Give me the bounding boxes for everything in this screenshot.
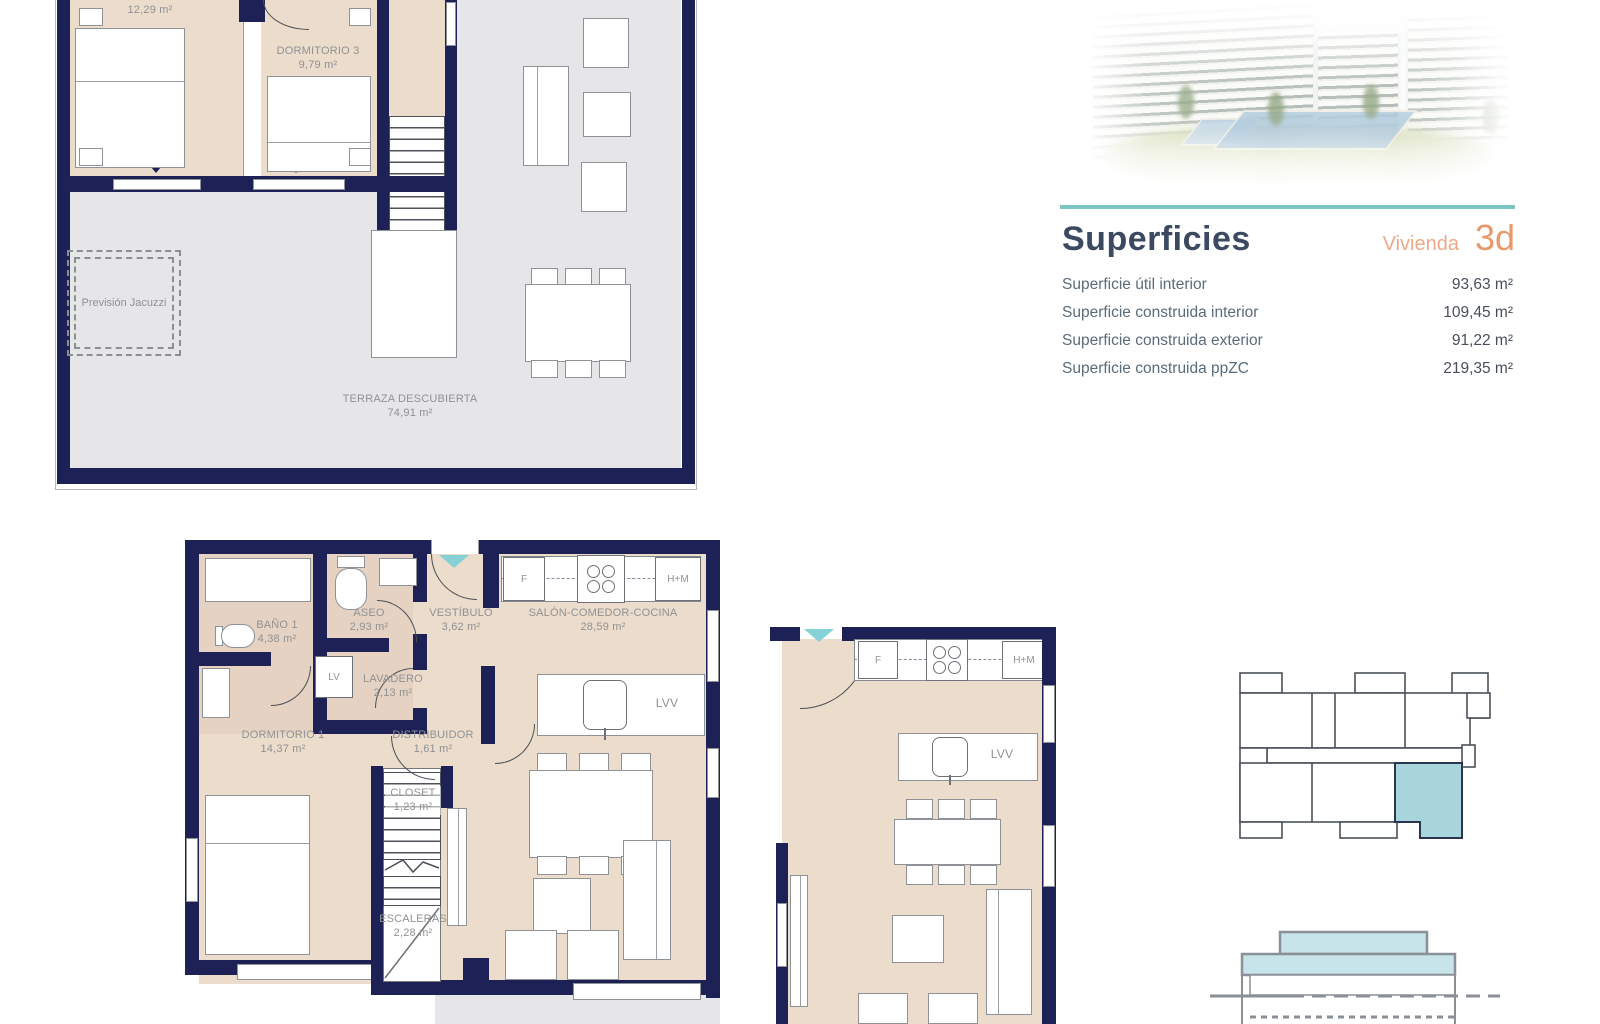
toilet (335, 568, 367, 610)
room-label-dormitorio1: DORMITORIO 114,37 m² (213, 728, 353, 757)
dishwasher-label: LVV (976, 747, 1028, 763)
wall (239, 0, 265, 22)
chair (938, 799, 965, 819)
wall (441, 766, 453, 808)
location-key-plan (1205, 645, 1515, 840)
wall (199, 652, 271, 666)
key-top-row (1240, 693, 1470, 748)
accent-rule (1060, 205, 1515, 209)
chair (970, 799, 997, 819)
chair (906, 799, 933, 819)
area-label: Superficie útil interior (1062, 276, 1207, 294)
wall (185, 540, 199, 975)
chair (531, 360, 558, 378)
cooktop-icon (577, 555, 625, 603)
armchair (858, 993, 908, 1024)
chair (938, 865, 965, 885)
window (446, 2, 456, 46)
tv-cabinet (790, 875, 808, 1007)
coffee-table (892, 915, 944, 963)
chair (565, 360, 592, 378)
key-bottom-row (1240, 763, 1397, 822)
burners (933, 646, 961, 674)
table-row: Superficie construida interior 109,45 m² (1062, 299, 1513, 327)
window (1043, 825, 1055, 887)
sink-tap (949, 775, 951, 785)
key-bump (1467, 693, 1490, 718)
room-label-bedroom3: DORMITORIO 3 9,79 m² (261, 44, 375, 73)
sofa (523, 66, 569, 166)
bed (205, 795, 310, 955)
chair (537, 856, 567, 875)
wall (57, 468, 695, 484)
sink (379, 558, 417, 586)
nightstand (349, 148, 371, 166)
floor-plan-upper-level: Previsión Jacuzzi 12,29 m² DORMITORIO 3 … (55, 0, 697, 490)
coffee-table (533, 878, 591, 934)
wall (483, 554, 499, 608)
table-row: Superficie útil interior 93,63 m² (1062, 271, 1513, 299)
palm-tree (1178, 85, 1194, 119)
room-name: TERRAZA DESCUBIERTA (280, 392, 540, 406)
area-label: Superficie construida ppZC (1062, 360, 1249, 378)
oven-label: H+M (667, 574, 688, 585)
fridge-box: F (858, 641, 898, 679)
key-bump (1462, 745, 1475, 767)
dishwasher-label: LVV (637, 696, 697, 712)
nightstand (349, 8, 371, 26)
fridge-label: F (875, 655, 881, 666)
section-floor-upper (1242, 954, 1455, 975)
jacuzzi-provision-label: Previsión Jacuzzi (74, 257, 174, 349)
highlighted-unit (1395, 763, 1462, 838)
key-bump (1240, 673, 1282, 693)
armchair (567, 930, 619, 980)
armchair (583, 18, 629, 68)
window-marker-icon (563, 984, 573, 990)
window (253, 179, 345, 190)
room-area: 12,29 m² (90, 3, 210, 17)
superficies-panel: Superficies Vivienda 3d Superficie útil … (1060, 205, 1515, 395)
dining-table (894, 819, 1001, 865)
area-value: 109,45 m² (1443, 304, 1513, 322)
oven-label: H+M (1013, 655, 1034, 666)
bed (75, 28, 185, 168)
room-label-salon: SALÓN-COMEDOR-COCINA28,59 m² (505, 606, 701, 635)
table-row: Superficie construida ppZC 219,35 m² (1062, 355, 1513, 383)
area-label: Superficie construida exterior (1062, 332, 1263, 350)
nightstand (79, 148, 103, 166)
armchair (928, 993, 978, 1024)
room-label-aseo: ASEO2,93 m² (327, 606, 411, 635)
room-area: 74,91 m² (280, 406, 540, 420)
vivienda-label: Vivienda (1383, 233, 1459, 256)
coffee-table (583, 92, 631, 137)
staircase (383, 876, 441, 906)
building-section-key (1205, 930, 1505, 1024)
hero-rendering (1063, 0, 1525, 198)
area-value: 91,22 m² (1452, 332, 1513, 350)
fridge-box: F (503, 557, 545, 601)
vivienda-tag: Vivienda 3d (1383, 217, 1515, 259)
palm-tree (1483, 100, 1499, 134)
vivienda-code: 3d (1475, 217, 1515, 259)
dining-table (525, 284, 631, 362)
sofa (623, 840, 671, 960)
wall (463, 958, 489, 984)
sofa (986, 889, 1032, 1015)
key-bump (1340, 822, 1397, 838)
armchair (505, 930, 557, 980)
wall (682, 0, 695, 484)
chair (599, 360, 626, 378)
table-row: Superficie construida exterior 91,22 m² (1062, 327, 1513, 355)
chair (970, 865, 997, 885)
window (1043, 685, 1055, 743)
stair-landing (389, 0, 445, 116)
island-sink (932, 737, 968, 777)
sink-tap (604, 728, 606, 740)
window (707, 748, 719, 798)
sink (202, 668, 230, 718)
window (777, 903, 787, 967)
partition-strip (243, 0, 263, 178)
wall (377, 0, 389, 240)
window (707, 610, 719, 682)
floor-plan-living-detail: F H+M LVV (770, 585, 1056, 1024)
floor-plan-main-level: LV F H+M LVV (185, 540, 720, 1024)
island-sink (583, 680, 627, 730)
oven-box: H+M (1002, 641, 1046, 679)
fridge-label: F (521, 574, 527, 585)
section-floor-below (1250, 975, 1455, 995)
room-label-vestibulo: VESTÍBULO3,62 m² (419, 606, 503, 635)
washer-label: LV (328, 672, 340, 683)
window (113, 179, 201, 190)
key-bump (1240, 822, 1282, 838)
area-label: Superficie construida interior (1062, 304, 1258, 322)
window (186, 838, 198, 902)
room-area: 9,79 m² (261, 58, 375, 72)
burners (587, 565, 615, 593)
room-label-terrace: TERRAZA DESCUBIERTA 74,91 m² (280, 392, 540, 421)
cooktop-icon (926, 639, 968, 681)
room-label-lavadero: LAVADERO2,13 m² (347, 672, 439, 701)
palm-tree (1363, 85, 1379, 119)
palm-tree (1268, 92, 1284, 126)
room-label-closet: CLOSET1,23 m² (385, 786, 441, 815)
chair (906, 865, 933, 885)
entry-door-gap (431, 540, 479, 554)
oven-box: H+M (655, 557, 701, 601)
jacuzzi-provision-box: Previsión Jacuzzi (67, 250, 181, 356)
room-label-bano1: BAÑO 14,38 m² (235, 618, 319, 647)
toilet-tank (337, 556, 365, 568)
wardrobe (447, 808, 467, 926)
armchair (581, 162, 627, 212)
room-label-escaleras: ESCALERAS2,28 m² (377, 912, 449, 941)
wall (57, 0, 70, 484)
area-value: 93,63 m² (1452, 276, 1513, 294)
section-floor-top (1280, 932, 1427, 954)
bathtub (205, 558, 311, 602)
area-table: Superficie útil interior 93,63 m² Superf… (1062, 271, 1513, 383)
key-bump (1355, 673, 1405, 693)
pool (1212, 110, 1417, 150)
key-corridor (1267, 748, 1473, 763)
window (573, 983, 701, 1000)
room-label-distribuidor: DISTRIBUIDOR1,61 m² (381, 728, 485, 757)
area-value: 219,35 m² (1443, 360, 1513, 378)
brochure-page: Previsión Jacuzzi 12,29 m² DORMITORIO 3 … (0, 0, 1600, 1024)
stairwell-opening (371, 230, 457, 358)
stair-break-icon (383, 856, 441, 876)
wall (770, 627, 800, 641)
chair (579, 856, 609, 875)
panel-title: Superficies (1062, 220, 1251, 259)
room-name: DORMITORIO 3 (261, 44, 375, 58)
room-label-bedroom2: 12,29 m² (90, 3, 210, 17)
